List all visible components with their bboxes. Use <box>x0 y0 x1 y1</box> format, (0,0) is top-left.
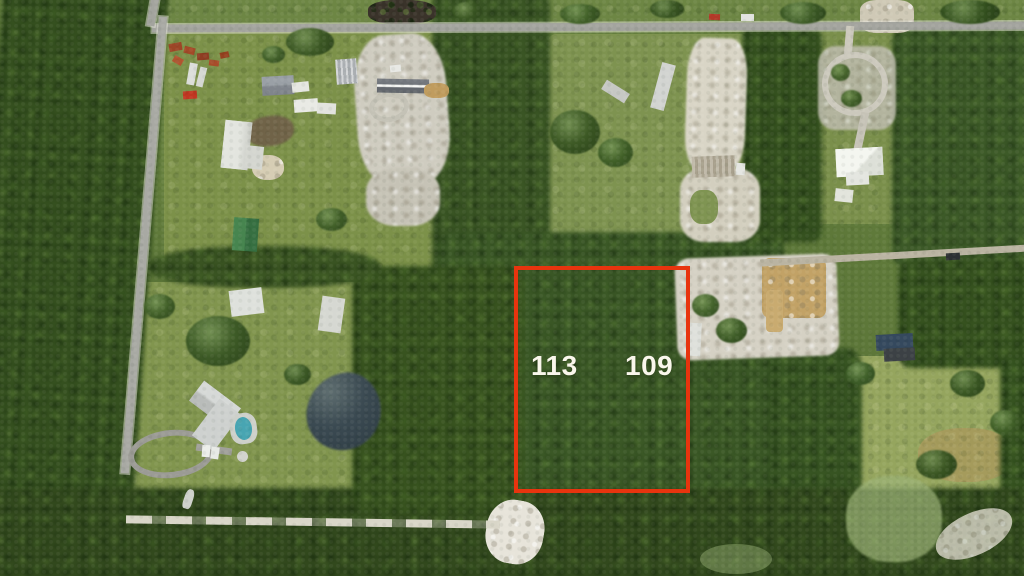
tree-cluster-nw-road <box>286 28 334 56</box>
tree-in-loop-1 <box>831 64 850 81</box>
car-white-nw <box>390 64 402 72</box>
truck-red-north <box>709 14 720 20</box>
shed-metal <box>335 58 358 84</box>
shed-white-3 <box>317 103 337 115</box>
scene-layer <box>0 0 1024 576</box>
moss-patch-s <box>700 544 772 574</box>
tree-verge-3 <box>650 0 684 18</box>
building-white-L-wing <box>244 145 264 170</box>
aerial-photo: 113 109 <box>0 0 1024 576</box>
sand-strip-top-center <box>684 37 749 173</box>
car-white-sw-2 <box>210 447 220 460</box>
shed-white-2 <box>294 98 319 113</box>
forest-top-right <box>892 28 1024 266</box>
tree-center-2 <box>598 138 633 167</box>
dirt-tan-east <box>424 83 449 98</box>
car-white-sw-1 <box>202 445 211 458</box>
forest-mid-right <box>898 260 1024 368</box>
tree-pond-west <box>284 364 311 385</box>
shed-sw-2 <box>318 296 346 334</box>
shed-sw-1 <box>229 287 265 317</box>
house-green-roof <box>232 217 259 252</box>
tree-verge-2 <box>560 4 600 24</box>
red-container <box>183 91 198 100</box>
tree-lawn-nw <box>316 208 347 231</box>
tree-clearing-1 <box>692 294 719 317</box>
shed-white-ne <box>834 188 853 203</box>
car-white-center <box>736 163 746 176</box>
lot-label-109: 109 <box>625 352 673 380</box>
forest-pond-east <box>352 266 524 514</box>
building-tan-roof <box>692 155 736 177</box>
junk-pile-3 <box>197 52 210 60</box>
limestone-clearing-nw-2 <box>366 168 440 226</box>
house-white-ne-wing <box>846 171 870 185</box>
house-long-dark-roof <box>377 79 429 94</box>
shed-white-1 <box>292 81 310 93</box>
truck-white-north <box>741 14 754 21</box>
lot-label-113: 113 <box>531 352 578 380</box>
fire-pit <box>237 451 248 462</box>
tree-meadow-3 <box>990 410 1021 435</box>
tree-verge-5 <box>940 0 1000 24</box>
tree-meadow-1 <box>846 362 875 385</box>
tree-verge-4 <box>780 2 826 24</box>
tree-nw-2 <box>262 46 285 63</box>
tree-sw-2 <box>144 294 175 319</box>
junk-pile-5 <box>209 59 220 66</box>
burn-pile <box>368 0 436 24</box>
tree-meadow-2 <box>950 370 985 397</box>
tree-sw-cluster <box>186 316 250 366</box>
trailer-dark-wing <box>884 347 916 362</box>
tree-center-1 <box>550 110 600 154</box>
car-dark-east <box>946 253 960 261</box>
tree-clearing-2 <box>716 318 747 343</box>
moss-patch-se <box>846 476 942 562</box>
tan-dirt-leg <box>766 290 783 332</box>
grass-inset-yard <box>690 190 718 224</box>
tree-verge-1 <box>452 2 482 20</box>
tree-meadow-4 <box>916 450 957 479</box>
house-gray-roof <box>262 75 295 96</box>
tree-row-mid-left <box>148 246 380 288</box>
parcel-boundary: 113 109 <box>514 266 690 493</box>
tree-in-loop-2 <box>841 90 862 107</box>
